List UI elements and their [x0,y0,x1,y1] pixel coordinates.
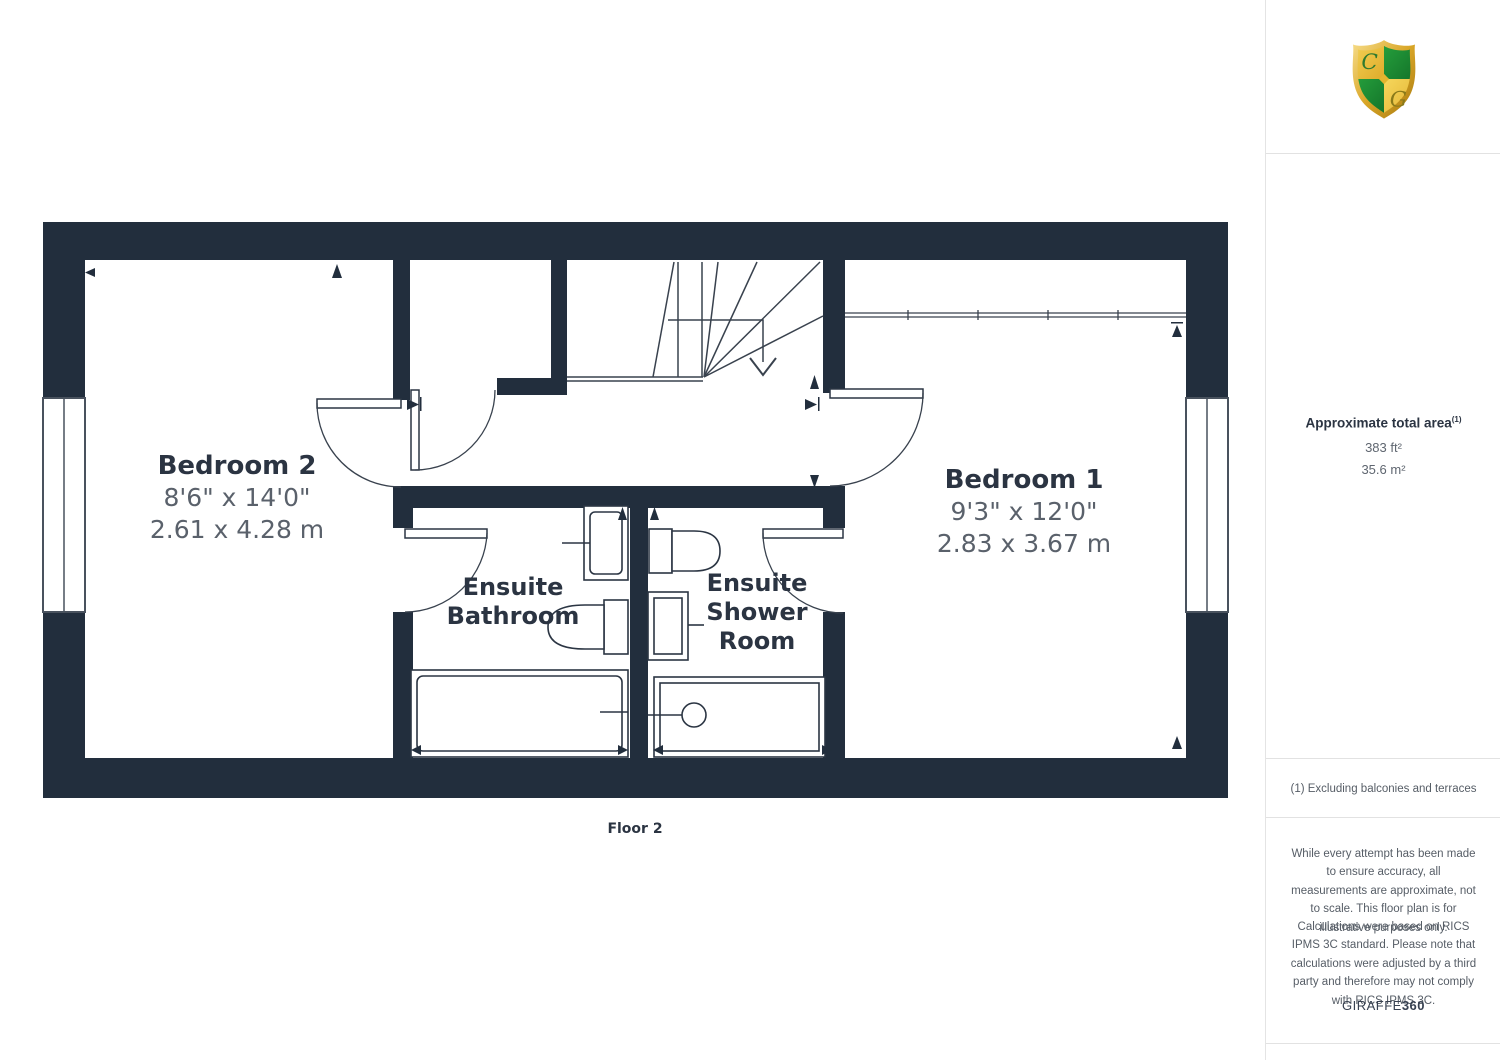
area-title: Approximate total area(1) [1266,415,1500,431]
door-cupboard [411,390,495,470]
room-name-line: Ensuite [706,569,807,598]
area-footnote: (1) Excluding balconies and terraces [1266,783,1500,795]
brand-shield-logo: C G [1348,36,1420,122]
room-dims-metric: 2.83 x 3.67 m [937,528,1111,561]
sidebar-divider [1266,817,1500,818]
window-left [43,398,85,612]
shower-tray [648,677,825,757]
logo-letter-g: G [1389,87,1406,112]
door-bedroom1 [830,389,923,486]
shower-sink [648,592,704,660]
area-metric: 35.6 m² [1266,462,1500,477]
sidebar-divider [1266,1043,1500,1044]
logo-letter-c: C [1361,50,1378,75]
label-ensuite-bathroom: Ensuite Bathroom [447,573,580,631]
room-dims-imperial: 8'6" x 14'0" [150,482,324,515]
wardrobe-line [845,310,1186,320]
room-dims-imperial: 9'3" x 12'0" [937,496,1111,529]
stair-walkline [668,320,763,362]
area-title-text: Approximate total area [1305,416,1451,431]
sidebar-divider [1266,758,1500,759]
brand-suffix: 360 [1402,998,1425,1013]
area-title-superscript: (1) [1452,415,1462,424]
window-right [1186,398,1228,612]
floor-label: Floor 2 [607,821,662,837]
info-sidebar: C G Approximate total area(1) 383 ft² 35… [1265,0,1500,1060]
floorplan-page: { "plan": { "floor_label": "Floor 2", "r… [0,0,1500,1060]
label-bedroom1: Bedroom 1 9'3" x 12'0" 2.83 x 3.67 m [937,466,1111,561]
room-dims-metric: 2.61 x 4.28 m [150,514,324,547]
staircase [567,262,823,381]
brand-name: GIRAFFE [1342,998,1402,1013]
bathtub [411,670,628,757]
room-name-line: Shower [706,598,807,627]
room-name-line: Ensuite [447,573,580,602]
room-name: Bedroom 2 [150,452,324,482]
door-bedroom2 [317,399,401,487]
label-bedroom2: Bedroom 2 8'6" x 14'0" 2.61 x 4.28 m [150,452,324,547]
disclaimer-rics: Calculations were based on RICS IPMS 3C … [1288,918,1479,1010]
shower-toilet [649,529,720,573]
brand-wordmark: GIRAFFE360 [1266,998,1500,1013]
area-imperial: 383 ft² [1266,440,1500,455]
label-ensuite-shower: Ensuite Shower Room [706,569,807,655]
bathroom-sink [562,506,628,580]
sidebar-divider [1266,153,1500,154]
room-name-line: Bathroom [447,602,580,631]
room-name-line: Room [706,627,807,656]
room-name: Bedroom 1 [937,466,1111,496]
